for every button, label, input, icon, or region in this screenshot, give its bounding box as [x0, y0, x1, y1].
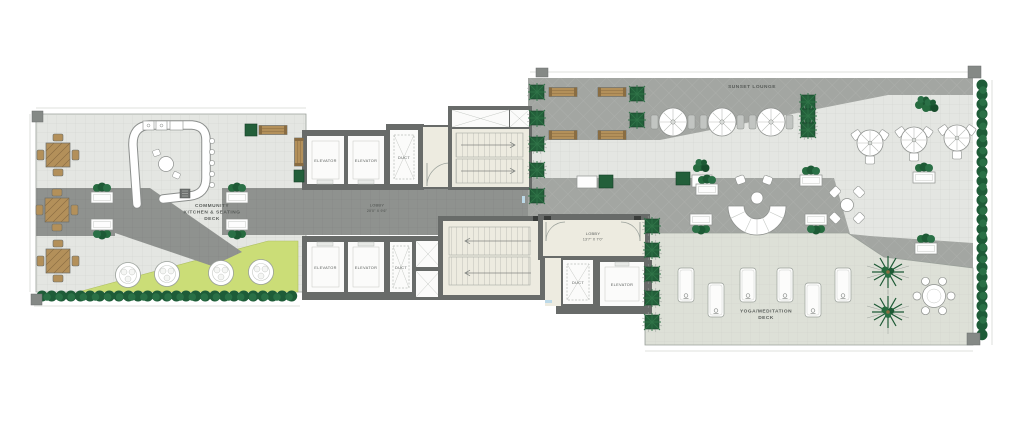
- planter-box: [577, 176, 597, 188]
- stairwell-top: [448, 106, 532, 190]
- planter-box: [913, 163, 935, 184]
- planter-box: [690, 214, 712, 235]
- duct-room-small: [416, 241, 440, 267]
- yoga-mat: [740, 268, 756, 302]
- sink: [156, 121, 167, 130]
- label-duct: DUCT: [572, 280, 584, 285]
- planter-box: [91, 219, 113, 240]
- label-community-deck: KITCHEN & SEATING: [184, 210, 241, 216]
- label-elevator: ELEVATOR: [314, 158, 337, 163]
- bench: [598, 131, 626, 140]
- planter-box: [805, 214, 827, 235]
- bench: [259, 126, 287, 135]
- lounge-chair: [116, 263, 141, 288]
- label-sunset-lounge: SUNSET LOUNGE: [728, 84, 776, 90]
- label-yoga-deck: DECK: [758, 315, 774, 321]
- survey-mark: [545, 300, 552, 303]
- stair-vestibule-top: [422, 126, 452, 188]
- hedge-row-right: [982, 85, 983, 338]
- label-community-deck: COMMUNITY: [195, 203, 229, 209]
- bench: [295, 138, 304, 166]
- lounge-chair: [209, 261, 234, 286]
- yoga-mat: [835, 268, 851, 302]
- planter-cube: [599, 175, 613, 188]
- yoga-mat: [678, 268, 694, 302]
- yoga-mat: [708, 283, 724, 317]
- lounge-chair: [155, 262, 180, 287]
- coffee-table: [751, 192, 763, 204]
- bench: [549, 131, 577, 140]
- planter-box: [226, 183, 248, 204]
- umbrella-tables-dark: [651, 108, 793, 136]
- label-lobby-main-dim: 20'0" X 9'6": [367, 209, 388, 213]
- hedge-row-bottom: [42, 296, 294, 297]
- sink: [143, 121, 154, 130]
- label-elevator: ELEVATOR: [355, 265, 378, 270]
- label-lobby-upper: LOBBY: [586, 231, 601, 236]
- planter-box: [915, 234, 937, 255]
- survey-mark: [522, 196, 525, 203]
- cooktop: [170, 121, 183, 130]
- bench: [598, 88, 626, 97]
- label-community-deck: DECK: [204, 216, 220, 222]
- upper-lobby-block: [538, 214, 652, 314]
- dining-tables: [36, 134, 79, 282]
- label-duct: DUCT: [395, 265, 407, 270]
- kitchen-table: [159, 157, 174, 172]
- planter-box: [696, 175, 718, 196]
- planter-cube: [676, 172, 690, 185]
- floor-plan: COMMUNITY KITCHEN & SEATING DECK SUNSET …: [0, 0, 1024, 423]
- planter-cube: [294, 170, 304, 182]
- label-duct: DUCT: [398, 155, 410, 160]
- label-yoga-deck: YOGA/MEDITATION: [740, 309, 792, 315]
- yoga-mat: [777, 268, 793, 302]
- bench: [549, 88, 577, 97]
- umbrella-tables-light: [851, 124, 977, 164]
- label-elevator: ELEVATOR: [314, 265, 337, 270]
- yoga-mat: [805, 283, 821, 317]
- planter-box: [226, 219, 248, 240]
- label-elevator: ELEVATOR: [355, 158, 378, 163]
- lounge-chair: [249, 260, 274, 285]
- duct-room-small: [416, 271, 440, 297]
- label-elevator: ELEVATOR: [611, 282, 634, 287]
- floor-plan-canvas: COMMUNITY KITCHEN & SEATING DECK SUNSET …: [0, 0, 1024, 423]
- label-lobby-main: LOBBY: [370, 203, 385, 208]
- label-lobby-upper-dim: 13'7" X 7'0": [583, 238, 604, 242]
- planter-box: [800, 166, 822, 187]
- planter-box: [91, 183, 113, 204]
- planter-cube: [245, 124, 257, 136]
